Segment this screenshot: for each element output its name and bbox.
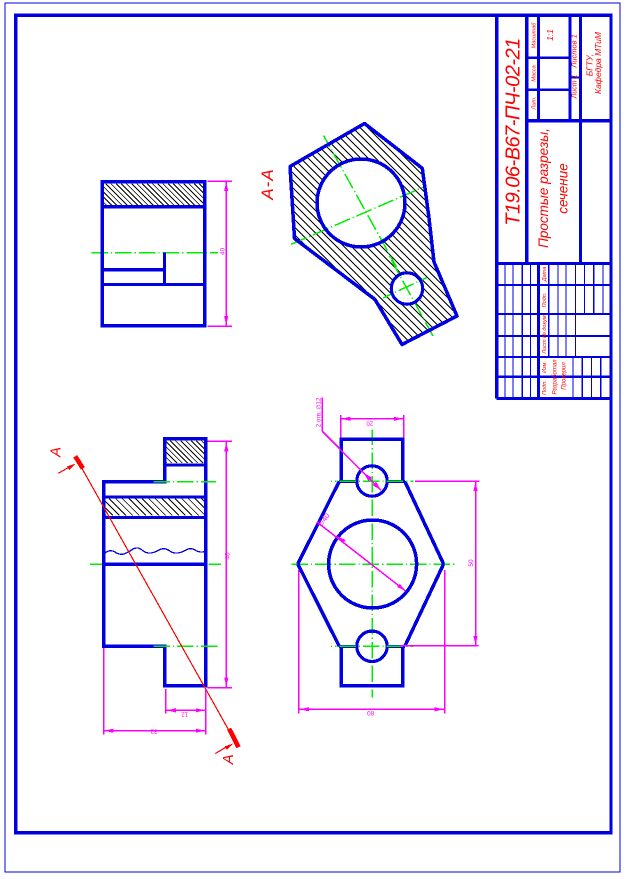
svg-text:Дата: Дата: [542, 267, 548, 283]
svg-text:№ докум.: № докум.: [542, 314, 548, 338]
svg-text:40: 40: [224, 552, 231, 560]
svg-text:А: А: [48, 447, 65, 458]
svg-text:А: А: [220, 754, 237, 765]
svg-text:А-А: А-А: [258, 168, 277, 200]
svg-text:40: 40: [220, 248, 227, 256]
svg-text:Подп.: Подп.: [542, 380, 548, 395]
svg-text:Масштаб: Масштаб: [532, 22, 538, 49]
svg-text:Разработал: Разработал: [553, 359, 559, 395]
svg-text:1:1: 1:1: [545, 29, 555, 41]
svg-text:Т19.06-В67-ПЧ-02-21: Т19.06-В67-ПЧ-02-21: [503, 38, 525, 225]
svg-text:Лист: Лист: [542, 339, 548, 355]
svg-text:50: 50: [468, 559, 475, 567]
svg-text:Изм.: Изм.: [542, 361, 548, 373]
svg-text:сечение: сечение: [556, 163, 571, 213]
svg-text:Листов 1: Листов 1: [570, 34, 579, 69]
svg-text:Лист 1: Лист 1: [572, 74, 579, 99]
svg-text:80: 80: [367, 709, 375, 716]
svg-text:12: 12: [181, 710, 188, 716]
svg-text:Простые разрезы,: Простые разрезы,: [536, 128, 551, 248]
svg-text:32: 32: [150, 728, 157, 734]
svg-text:Кафедра МТиМ: Кафедра МТиМ: [593, 31, 603, 94]
svg-text:Подп.: Подп.: [542, 293, 548, 308]
svg-text:Масса: Масса: [532, 65, 538, 81]
svg-text:20: 20: [366, 419, 373, 425]
svg-text:Проверил: Проверил: [562, 362, 568, 390]
svg-text:Лит.: Лит.: [532, 97, 538, 111]
svg-text:2 отв. ∅12: 2 отв. ∅12: [315, 397, 322, 427]
